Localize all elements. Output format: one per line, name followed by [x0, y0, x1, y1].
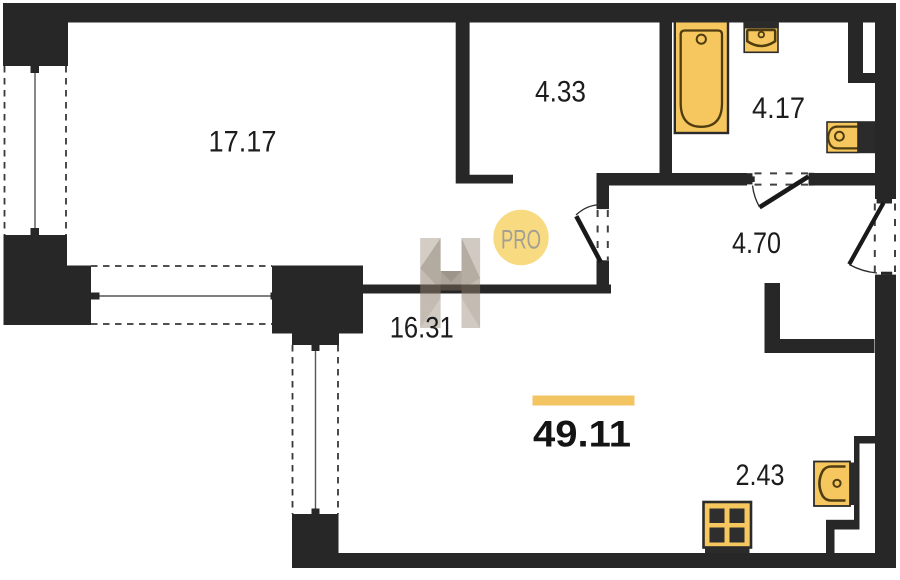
- svg-text:49.11: 49.11: [533, 414, 631, 455]
- svg-text:16.31: 16.31: [390, 312, 454, 345]
- svg-text:4.33: 4.33: [535, 76, 586, 109]
- svg-text:PRO: PRO: [501, 225, 541, 255]
- svg-text:4.17: 4.17: [752, 92, 805, 125]
- svg-text:2.43: 2.43: [736, 459, 785, 492]
- svg-text:4.70: 4.70: [732, 227, 781, 260]
- svg-text:17.17: 17.17: [209, 126, 277, 159]
